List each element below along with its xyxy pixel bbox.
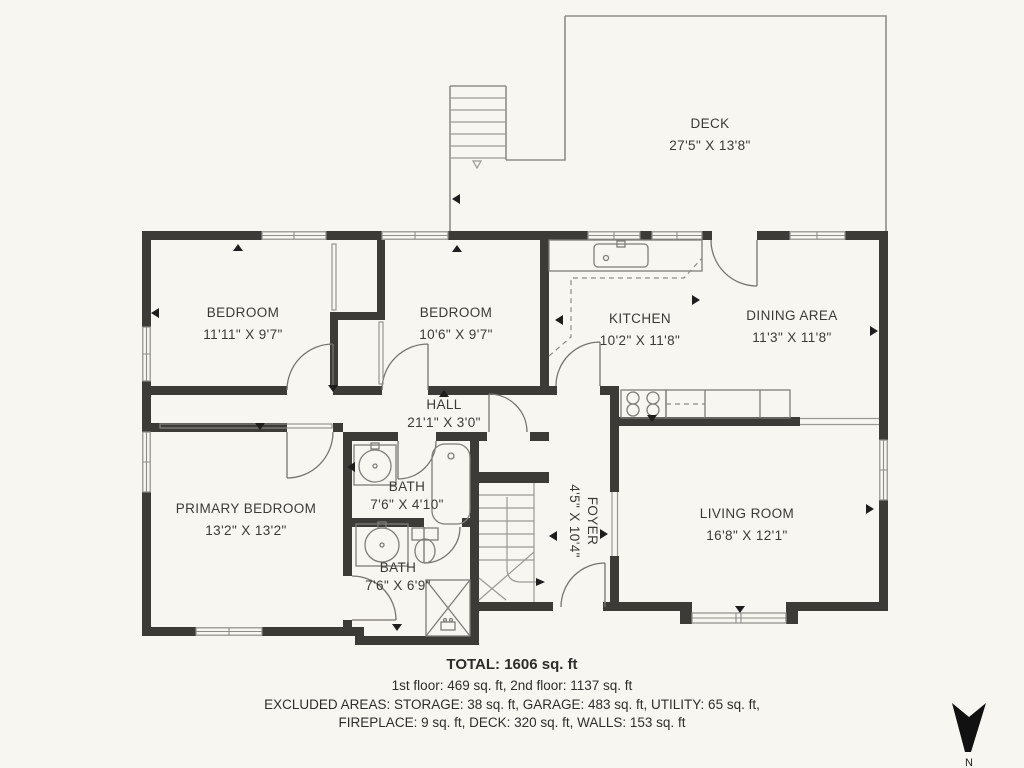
stove <box>621 390 666 418</box>
svg-text:11'3" X 11'8": 11'3" X 11'8" <box>752 330 832 345</box>
window <box>790 232 845 239</box>
door-bath2-inner <box>424 527 460 563</box>
svg-text:4'5" X 10'4": 4'5" X 10'4" <box>567 484 582 558</box>
window <box>143 327 150 381</box>
bay-window <box>692 613 786 623</box>
window <box>588 232 640 239</box>
svg-text:LIVING ROOM: LIVING ROOM <box>700 506 794 521</box>
door-stairs <box>489 394 527 432</box>
north-label: N <box>965 757 973 768</box>
door-deck-dining <box>711 240 757 286</box>
svg-text:10'6" X 9'7": 10'6" X 9'7" <box>419 327 493 342</box>
svg-text:FOYER: FOYER <box>585 497 600 546</box>
floor-plan-page: { "rooms": { "deck": {"name": "DECK", "d… <box>0 0 1024 768</box>
door-bath1 <box>398 441 436 479</box>
window <box>196 628 262 635</box>
room-label-dining: DINING AREA 11'3" X 11'8" <box>746 308 837 345</box>
svg-text:BATH: BATH <box>380 560 417 575</box>
svg-text:7'6" X 6'9": 7'6" X 6'9" <box>365 578 431 593</box>
svg-text:27'5" X 13'8": 27'5" X 13'8" <box>669 138 751 153</box>
walls <box>142 231 888 645</box>
svg-text:BEDROOM: BEDROOM <box>420 305 493 320</box>
shower <box>426 580 470 636</box>
svg-text:DINING AREA: DINING AREA <box>746 308 837 323</box>
floor-plan-drawing: DECK 27'5" X 13'8" BEDROOM 11'11" X 9'7"… <box>0 0 1024 768</box>
window <box>382 232 448 239</box>
room-label-foyer: FOYER 4'5" X 10'4" <box>567 484 600 558</box>
deck-outline <box>450 16 886 231</box>
deck-stairs <box>450 98 506 168</box>
stairs-direction-arrow <box>536 578 545 586</box>
area-summary: TOTAL: 1606 sq. ft 1st floor: 469 sq. ft… <box>0 656 1024 733</box>
door-kitchen <box>556 342 600 386</box>
svg-text:11'11" X 9'7": 11'11" X 9'7" <box>203 327 283 342</box>
front-door <box>561 563 605 607</box>
window <box>262 232 326 239</box>
kitchen-sink <box>594 241 648 267</box>
window <box>652 232 702 239</box>
svg-text:KITCHEN: KITCHEN <box>609 311 671 326</box>
svg-text:HALL: HALL <box>426 397 461 412</box>
room-label-bath1: BATH 7'6" X 4'10" <box>370 479 444 512</box>
svg-text:10'2" X 11'8": 10'2" X 11'8" <box>600 333 681 348</box>
svg-text:BATH: BATH <box>389 479 426 494</box>
svg-text:7'6" X 4'10": 7'6" X 4'10" <box>370 497 444 512</box>
windows <box>143 232 887 635</box>
excluded-areas-text-2: FIREPLACE: 9 sq. ft, DECK: 320 sq. ft, W… <box>0 714 1024 733</box>
room-label-primary-bedroom: PRIMARY BEDROOM 13'2" X 13'2" <box>176 501 317 538</box>
svg-text:16'8" X 12'1": 16'8" X 12'1" <box>706 528 788 543</box>
svg-text:PRIMARY BEDROOM: PRIMARY BEDROOM <box>176 501 317 516</box>
dimension-markers <box>151 194 878 631</box>
kitchen-fixtures <box>549 240 790 418</box>
stairs <box>479 483 545 602</box>
total-area-text: TOTAL: 1606 sq. ft <box>0 656 1024 673</box>
door-bedroom2 <box>382 344 428 390</box>
window <box>143 432 150 492</box>
room-label-deck: DECK 27'5" X 13'8" <box>669 116 751 153</box>
svg-text:BEDROOM: BEDROOM <box>207 305 280 320</box>
svg-text:DECK: DECK <box>690 116 729 131</box>
room-label-bedroom2: BEDROOM 10'6" X 9'7" <box>419 305 493 342</box>
room-label-kitchen: KITCHEN 10'2" X 11'8" <box>600 311 681 348</box>
door-bedroom1 <box>287 344 333 390</box>
svg-text:13'2" X 13'2": 13'2" X 13'2" <box>205 523 287 538</box>
room-label-living: LIVING ROOM 16'8" X 12'1" <box>700 506 794 543</box>
bath2-sink <box>365 528 399 562</box>
svg-text:21'1" X 3'0": 21'1" X 3'0" <box>407 415 481 430</box>
room-label-hall: HALL 21'1" X 3'0" <box>407 397 481 430</box>
door-primary-bedroom <box>287 432 333 478</box>
room-label-bedroom1: BEDROOM 11'11" X 9'7" <box>203 305 283 342</box>
bath1-sink <box>359 450 391 482</box>
floor-areas-text: 1st floor: 469 sq. ft, 2nd floor: 1137 s… <box>0 677 1024 696</box>
excluded-areas-text-1: EXCLUDED AREAS: STORAGE: 38 sq. ft, GARA… <box>0 696 1024 715</box>
room-label-bath2: BATH 7'6" X 6'9" <box>365 560 431 593</box>
toilet <box>412 528 438 563</box>
window <box>880 440 887 500</box>
bathtub <box>432 444 470 524</box>
